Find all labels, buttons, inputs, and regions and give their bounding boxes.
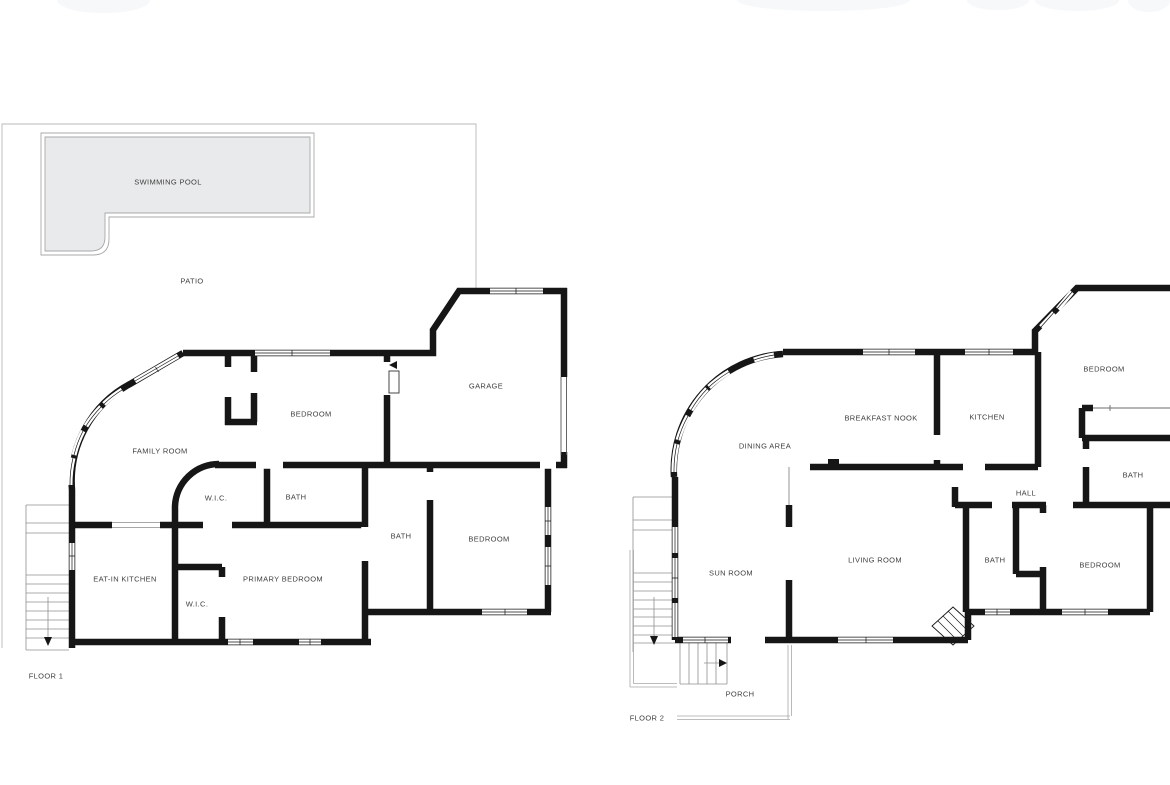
- garage-door: [561, 377, 567, 455]
- floorplan-drawing: [0, 0, 1170, 785]
- floor2-walls: [674, 288, 1170, 640]
- floorplan-canvas: SWIMMING POOLPATIOGARAGEBEDROOMFAMILY RO…: [0, 0, 1170, 785]
- floor1-walls: [69, 288, 567, 648]
- fireplace-bump: [828, 459, 839, 468]
- floor2-tag: FLOOR 2: [630, 714, 665, 723]
- floor1-plan: [2, 124, 567, 650]
- stair-down-arrow-icon: [650, 636, 658, 645]
- closet-front-line: [1093, 405, 1170, 411]
- floor2-plan: [630, 288, 1170, 720]
- floor1-tag: FLOOR 1: [29, 672, 64, 681]
- swimming-pool: [45, 137, 310, 251]
- porch-steps: [680, 641, 727, 684]
- stairs-floor2: [633, 497, 675, 652]
- stair-right-arrow-icon: [719, 659, 727, 667]
- stair-down-arrow-icon: [44, 637, 52, 646]
- stairs-floor1: [26, 505, 69, 650]
